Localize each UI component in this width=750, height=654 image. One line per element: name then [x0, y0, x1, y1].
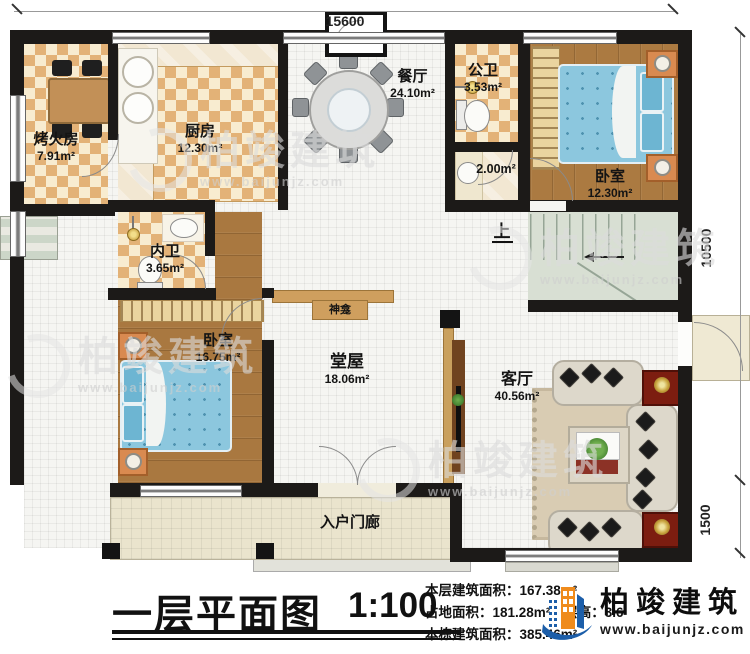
room-label-kitchen: 厨房 12.30m² [165, 123, 235, 155]
brand-logo: 柏竣建筑 www.baijunjz.com [536, 582, 745, 644]
sink-basin-icon [170, 218, 198, 238]
dim-top-label: 15600 [302, 13, 388, 29]
plant-icon [586, 438, 608, 460]
room-label-living: 客厅 40.56m² [480, 370, 554, 404]
wall-bedroomw-right-b [262, 340, 274, 483]
door-gap [530, 201, 566, 211]
wall-innerbath-right [205, 212, 215, 256]
nightstand [118, 448, 148, 476]
room-label-porch: 入户门廊 [307, 514, 393, 532]
side-table [642, 512, 682, 548]
brand-name: 柏竣建筑 [600, 589, 745, 618]
dim-right-upper-label: 10500 [698, 218, 714, 278]
nightstand [646, 154, 678, 182]
wall-innerbath-bottom [108, 288, 216, 300]
room-label-inner-bath: 内卫 3.65m² [133, 243, 197, 275]
entry-door-gap [318, 483, 396, 497]
structural-column [440, 310, 460, 328]
title-underline [112, 630, 460, 634]
chair [387, 98, 404, 117]
stairs-up-label: 上 [490, 222, 514, 242]
room-label-hall: 堂屋 18.06m² [307, 352, 387, 387]
plant-icon [452, 394, 464, 406]
floor-hallway [215, 212, 262, 300]
floor-porch [110, 497, 452, 560]
side-table [642, 370, 682, 406]
wall-bedroomw-right-a [262, 288, 274, 298]
wall-wash-bottom [445, 200, 518, 212]
wall-kitchen-dining [278, 44, 288, 210]
bed-sheet-fold [612, 66, 636, 158]
brand-url: www.baijunjz.com [600, 621, 745, 637]
window [283, 32, 445, 44]
entry-steps [253, 558, 471, 572]
window [523, 32, 617, 44]
room-label-kaohuofang: 烤火房 7.91m² [20, 131, 92, 163]
brand-logo-icon [536, 582, 596, 644]
kaohuofang-table [48, 78, 110, 124]
wall-under-stairs [528, 300, 678, 312]
bed-sheet-fold [146, 362, 166, 446]
wall-kaohuofang-kitchen [108, 44, 118, 140]
room-label-bedroom-ne: 卧室 12.30m² [570, 168, 650, 200]
dim-line-top [14, 11, 676, 12]
side-door-gap [678, 322, 692, 366]
wardrobe-bedroom-ne [532, 46, 560, 170]
stair-arrow-icon [594, 256, 624, 258]
lamp-icon [654, 519, 670, 535]
coffee-table-base [576, 460, 618, 474]
porch-pillar [256, 543, 274, 559]
pillow [122, 404, 144, 442]
room-label-wash-area: 2.00m² [470, 162, 522, 177]
nightstand [118, 332, 148, 360]
title-underline [112, 638, 460, 640]
wall-kitchen-bottom [108, 200, 215, 212]
pillow [640, 72, 664, 112]
kitchen-sink-icon [122, 56, 154, 88]
lamp-icon [654, 377, 670, 393]
window [10, 211, 26, 257]
light-fixture-icon [127, 228, 140, 241]
pillow [122, 366, 144, 404]
pillow [640, 112, 664, 152]
dim-tick [11, 3, 22, 14]
chair [292, 98, 309, 117]
nightstand [646, 50, 678, 78]
dim-tick [667, 3, 678, 14]
shrine-box: 神龛 [312, 300, 368, 320]
room-label-bedroom-w: 卧室 16.75m² [183, 332, 253, 364]
exterior-lightwell-left [0, 216, 58, 260]
wall-right [678, 30, 692, 562]
room-label-dining: 餐厅 24.10m² [370, 68, 455, 100]
stair-arrowhead-icon [584, 252, 594, 262]
room-label-public-bath: 公卫 3.53m² [445, 62, 521, 94]
window [140, 485, 242, 497]
kitchen-stove-icon [122, 92, 154, 124]
window [505, 550, 619, 562]
dining-table-center [327, 88, 371, 132]
window [112, 32, 210, 44]
chair [82, 60, 102, 76]
porch-pillar [102, 543, 120, 559]
step-strip-right [505, 562, 619, 572]
wall-porch-living [450, 483, 462, 548]
dim-right-lower-label: 1500 [697, 495, 713, 545]
floor-plan-canvas: 神龛 [0, 0, 750, 654]
chair [52, 60, 72, 76]
toilet-bowl-icon [464, 100, 490, 132]
shrine-label: 神龛 [329, 304, 351, 316]
